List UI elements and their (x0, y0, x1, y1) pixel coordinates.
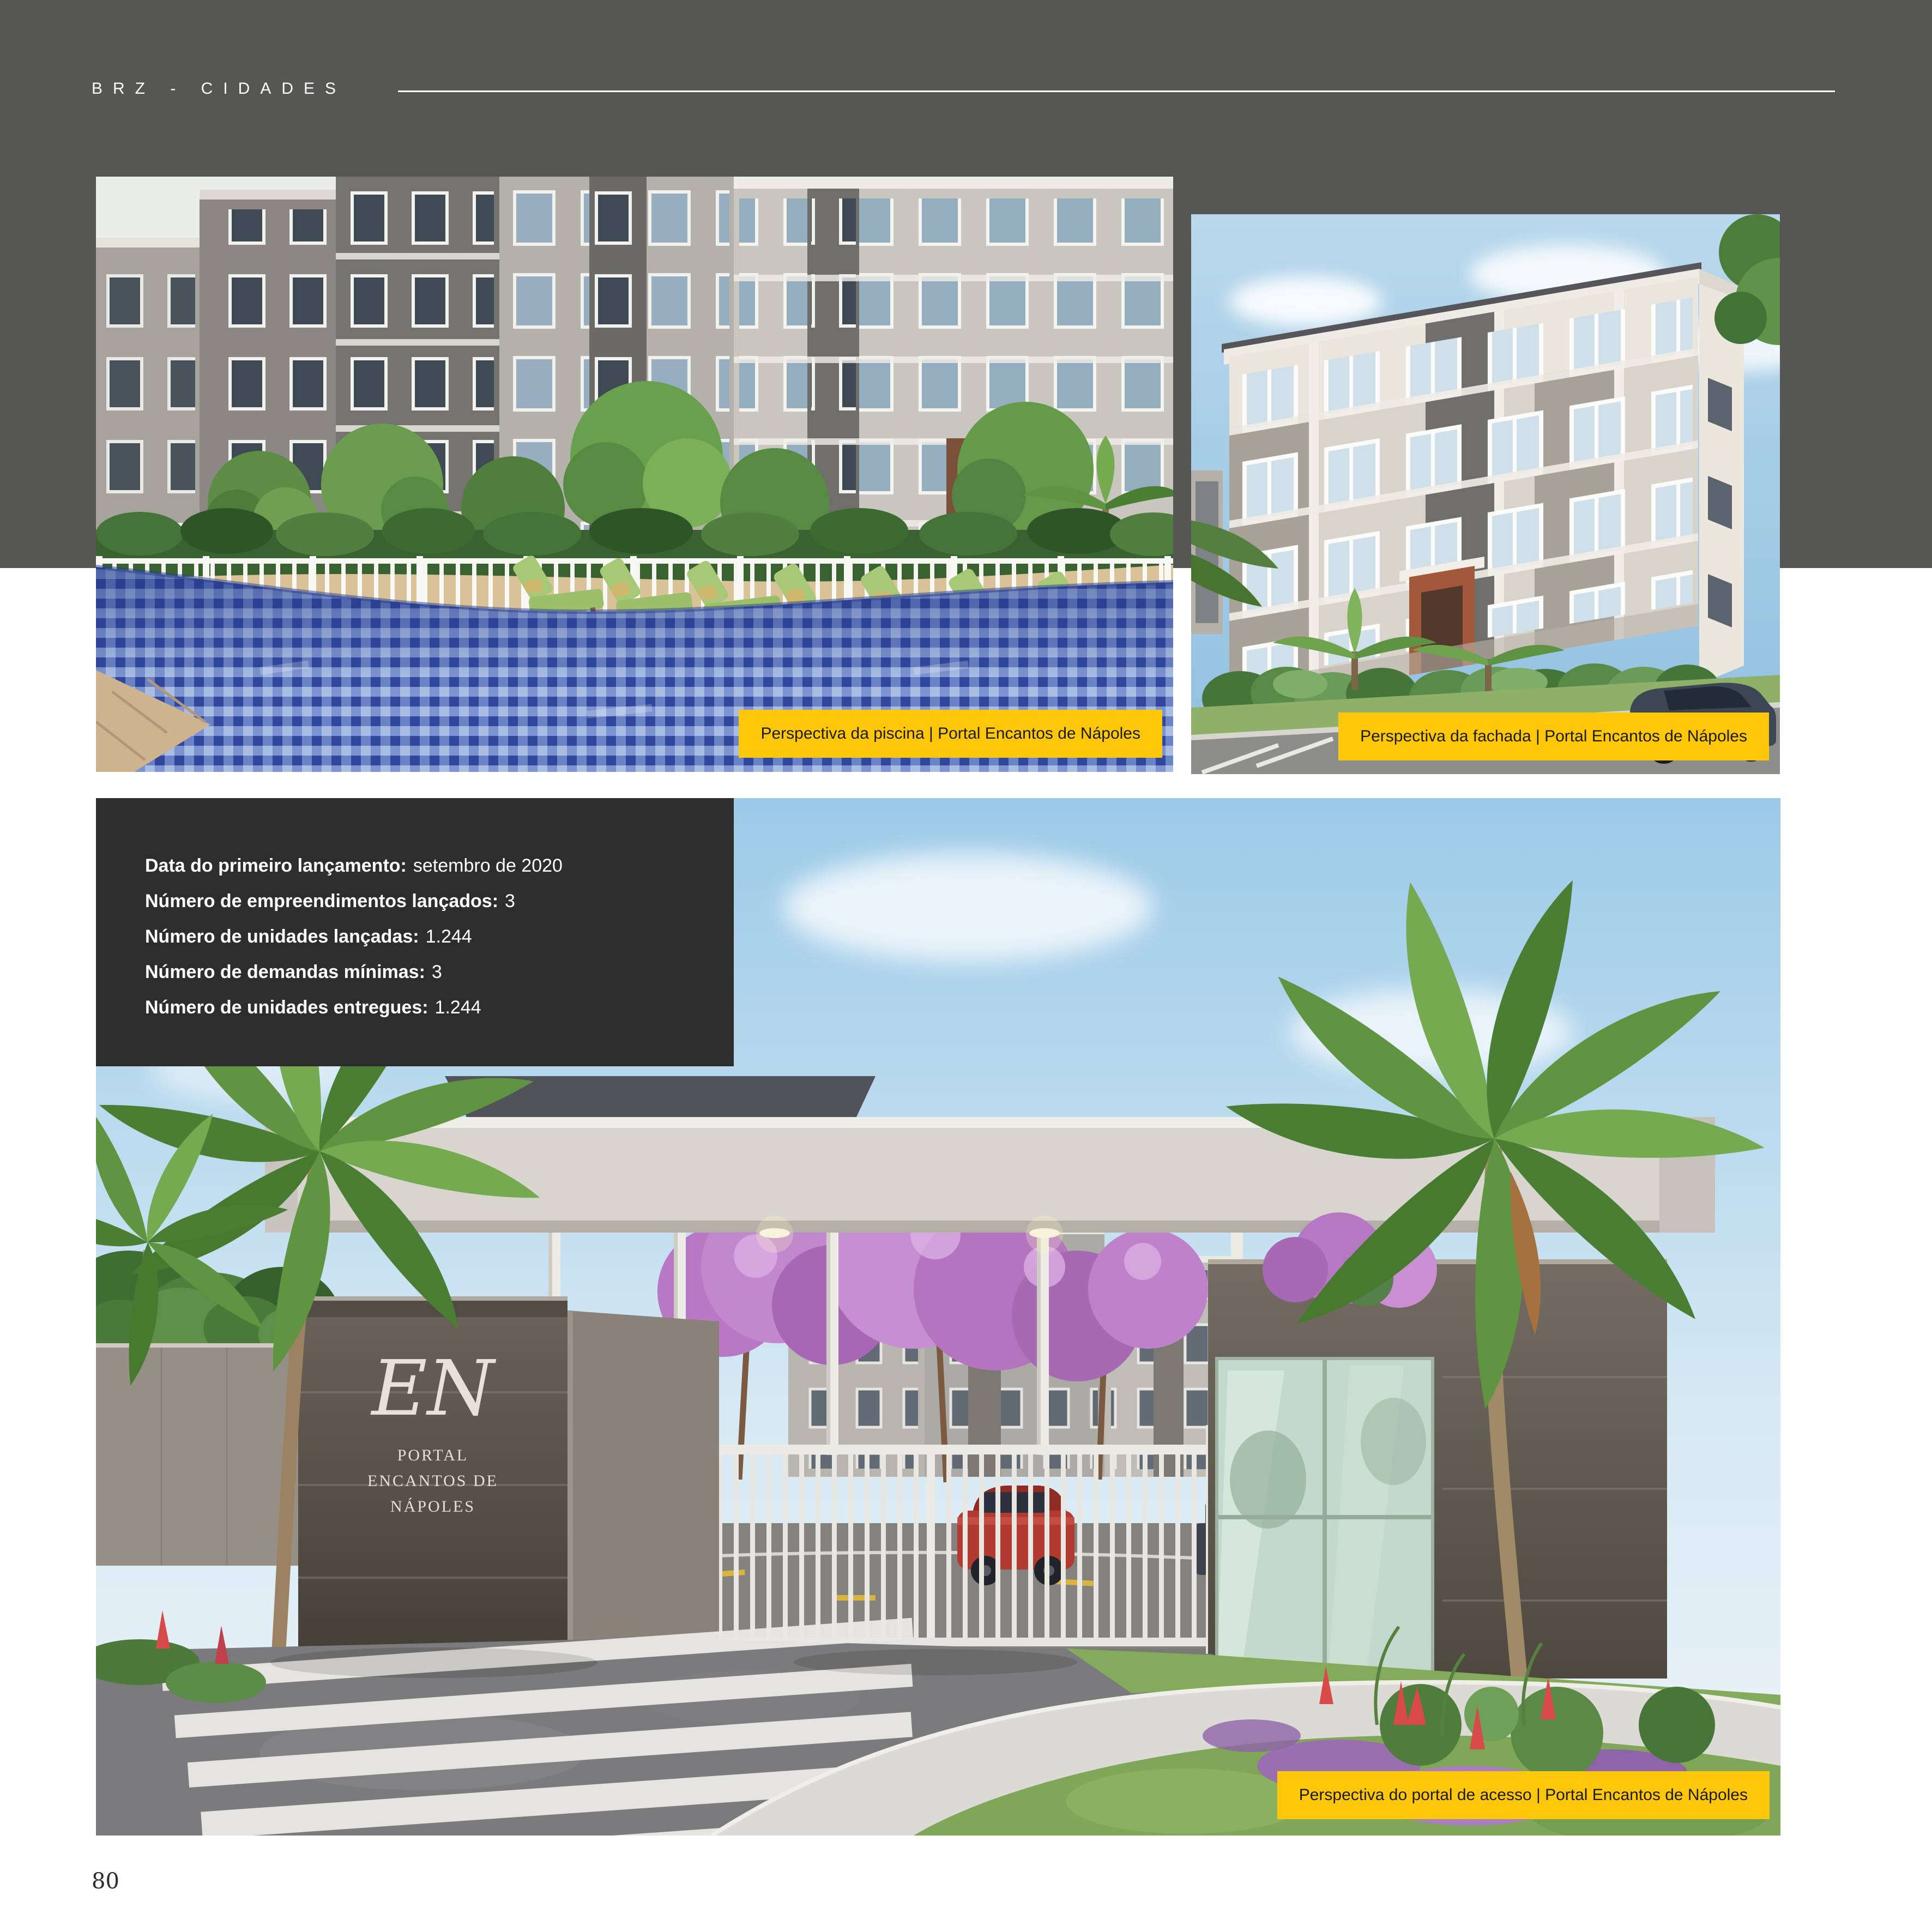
facade-caption-text: Perspectiva da fachada | Portal Encantos… (1360, 727, 1747, 746)
sign-monogram: EN (298, 1343, 567, 1435)
sign-line-2: ENCANTOS DE (298, 1468, 567, 1494)
info-row-label: Número de unidades entregues: (145, 997, 428, 1018)
info-row-value: 3 (432, 962, 442, 982)
pool-render: Perspectiva da piscina | Portal Encantos… (96, 177, 1173, 772)
sign-line-3: NÁPOLES (298, 1494, 567, 1519)
portal-caption: Perspectiva do portal de acesso | Portal… (1277, 1771, 1770, 1819)
info-row: Data do primeiro lançamento:setembro de … (145, 848, 707, 884)
info-row-label: Número de demandas mínimas: (145, 962, 425, 982)
info-row-label: Data do primeiro lançamento: (145, 855, 407, 876)
pool-caption-text: Perspectiva da piscina | Portal Encantos… (760, 724, 1140, 743)
portal-sign: EN PORTAL ENCANTOS DE NÁPOLES (298, 1343, 567, 1519)
header-rule (398, 90, 1835, 92)
info-panel: Data do primeiro lançamento:setembro de … (96, 798, 734, 1066)
info-row-label: Número de unidades lançadas: (145, 926, 419, 947)
pool-illustration (96, 177, 1173, 772)
info-row: Número de unidades entregues:1.244 (145, 990, 707, 1025)
pool-caption: Perspectiva da piscina | Portal Encantos… (739, 710, 1162, 758)
info-row: Número de unidades lançadas:1.244 (145, 919, 707, 955)
sign-line-1: PORTAL (298, 1442, 567, 1468)
page-number: 80 (92, 1869, 119, 1894)
info-row: Número de demandas mínimas:3 (145, 955, 707, 990)
portal-render: Data do primeiro lançamento:setembro de … (96, 798, 1780, 1836)
facade-caption: Perspectiva da fachada | Portal Encantos… (1338, 713, 1769, 760)
facade-render: Perspectiva da fachada | Portal Encantos… (1191, 214, 1780, 774)
info-row: Número de empreendimentos lançados:3 (145, 884, 707, 919)
info-row-value: setembro de 2020 (413, 855, 563, 876)
brochure-page: BRZ - CIDADES (0, 0, 1932, 1932)
page-kicker: BRZ - CIDADES (92, 80, 346, 98)
portal-caption-text: Perspectiva do portal de acesso | Portal… (1299, 1786, 1748, 1804)
info-row-value: 3 (505, 891, 515, 911)
facade-illustration (1191, 214, 1780, 774)
info-row-value: 1.244 (426, 926, 472, 947)
info-row-value: 1.244 (435, 997, 481, 1018)
info-row-label: Número de empreendimentos lançados: (145, 891, 498, 911)
